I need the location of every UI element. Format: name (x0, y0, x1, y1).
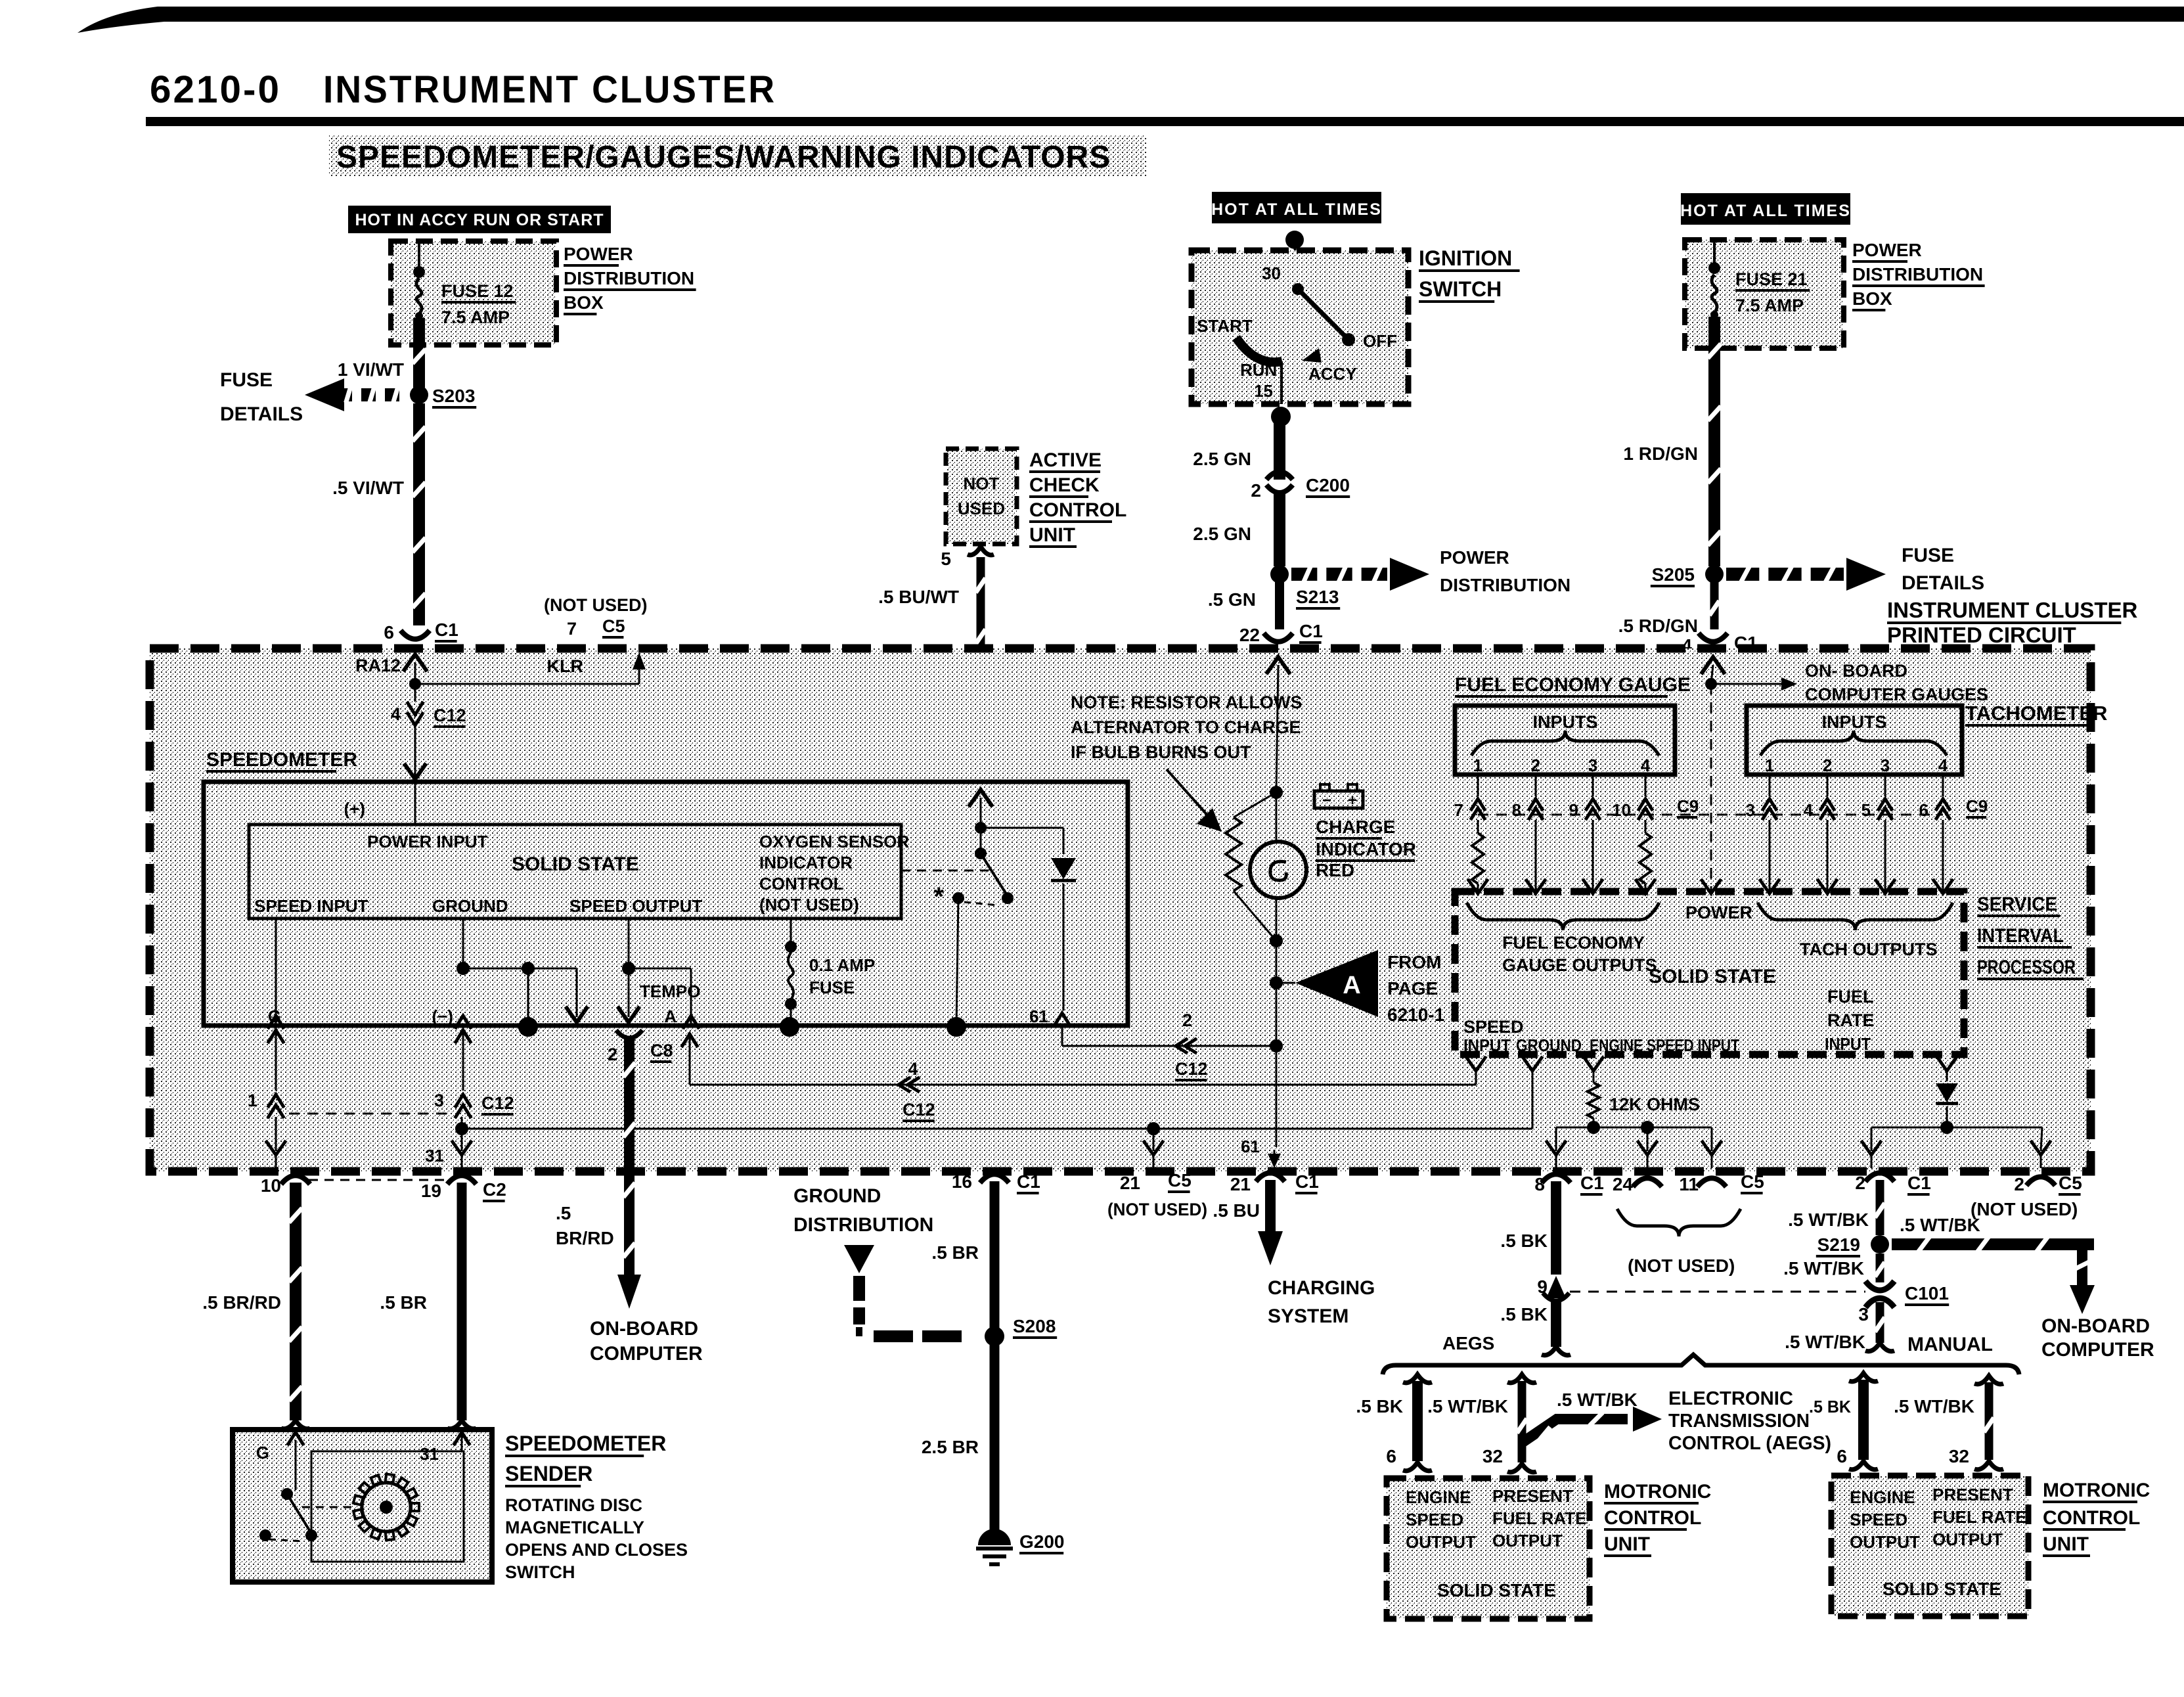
svg-text:.5 BR/RD: .5 BR/RD (202, 1292, 281, 1313)
svg-text:32: 32 (1949, 1446, 1969, 1466)
svg-text:SPEEDOMETER: SPEEDOMETER (206, 749, 357, 771)
svg-text:.5 RD/GN: .5 RD/GN (1618, 616, 1698, 636)
svg-text:ON- BOARD: ON- BOARD (1805, 661, 1907, 681)
svg-text:BOX: BOX (564, 292, 604, 313)
svg-text:FUSE: FUSE (1902, 545, 1954, 566)
svg-text:S208: S208 (1013, 1316, 1056, 1336)
svg-text:PRESENT: PRESENT (1932, 1485, 2013, 1505)
svg-text:.5 WT/BK: .5 WT/BK (1557, 1390, 1638, 1410)
svg-text:11: 11 (1679, 1174, 1699, 1194)
svg-text:CHARGING: CHARGING (1268, 1277, 1375, 1299)
svg-text:OFF: OFF (1363, 331, 1397, 351)
svg-text:C12: C12 (481, 1093, 514, 1113)
svg-text:9: 9 (1569, 800, 1578, 820)
svg-text:C12: C12 (1175, 1059, 1208, 1079)
svg-text:SOLID STATE: SOLID STATE (1649, 966, 1776, 987)
svg-text:3: 3 (1588, 756, 1597, 775)
svg-text:PRINTED CIRCUIT: PRINTED CIRCUIT (1887, 623, 2076, 647)
svg-text:S213: S213 (1296, 587, 1339, 607)
svg-text:DETAILS: DETAILS (1902, 572, 1984, 594)
svg-text:INPUT: INPUT (1825, 1034, 1871, 1054)
svg-text:PRESENT: PRESENT (1492, 1486, 1573, 1506)
svg-text:(NOT USED): (NOT USED) (1971, 1199, 2078, 1219)
svg-text:2.5 GN: 2.5 GN (1193, 449, 1251, 469)
svg-text:C5: C5 (2059, 1173, 2082, 1193)
svg-text:.5 WT/BK: .5 WT/BK (1785, 1332, 1865, 1352)
svg-text:TACH OUTPUTS: TACH OUTPUTS (1800, 939, 1938, 959)
svg-text:DETAILS: DETAILS (220, 403, 303, 425)
svg-text:IGNITION: IGNITION (1419, 246, 1512, 270)
svg-text:S203: S203 (432, 386, 475, 406)
svg-text:7: 7 (1454, 800, 1463, 820)
svg-text:.5: .5 (556, 1203, 571, 1223)
svg-text:G200: G200 (1019, 1531, 1065, 1552)
svg-text:C1: C1 (1907, 1173, 1931, 1193)
svg-text:KLR: KLR (547, 656, 584, 676)
svg-text:6210-1: 6210-1 (1387, 1005, 1444, 1025)
svg-text:CHECK: CHECK (1029, 474, 1100, 496)
svg-text:FUEL RATE: FUEL RATE (1492, 1508, 1586, 1528)
svg-text:21: 21 (1120, 1173, 1140, 1193)
svg-text:7: 7 (567, 619, 577, 639)
svg-text:.5 WT/BK: .5 WT/BK (1900, 1215, 1980, 1235)
svg-text:32: 32 (1482, 1446, 1503, 1466)
svg-text:ENGINE: ENGINE (1406, 1487, 1471, 1507)
svg-text:24: 24 (1613, 1174, 1634, 1194)
svg-text:C101: C101 (1905, 1283, 1949, 1303)
svg-text:HOT IN ACCY RUN OR START: HOT IN ACCY RUN OR START (355, 211, 604, 229)
svg-text:0.1 AMP: 0.1 AMP (809, 955, 875, 975)
svg-text:TEMPO: TEMPO (640, 982, 700, 1001)
svg-text:.5 BU: .5 BU (1213, 1200, 1260, 1221)
svg-text:MAGNETICALLY: MAGNETICALLY (505, 1518, 644, 1537)
svg-text:3: 3 (1746, 800, 1755, 820)
svg-text:S219: S219 (1817, 1234, 1860, 1255)
svg-text:SPEED: SPEED (1463, 1017, 1524, 1037)
svg-text:PAGE: PAGE (1387, 978, 1438, 999)
svg-text:FUSE 21: FUSE 21 (1735, 269, 1808, 289)
svg-text:C1: C1 (1299, 621, 1323, 641)
svg-text:C9: C9 (1677, 796, 1699, 816)
svg-text:DISTRIBUTION: DISTRIBUTION (564, 268, 694, 288)
svg-text:C12: C12 (903, 1100, 935, 1120)
svg-text:10: 10 (1612, 800, 1631, 820)
svg-text:2.5 GN: 2.5 GN (1193, 524, 1251, 544)
svg-text:CHARGE: CHARGE (1316, 817, 1395, 837)
svg-text:TACHOMETER: TACHOMETER (1965, 702, 2107, 725)
svg-text:ELECTRONIC: ELECTRONIC (1668, 1388, 1793, 1409)
svg-text:OUTPUT: OUTPUT (1492, 1531, 1563, 1550)
svg-text:6: 6 (1837, 1446, 1847, 1466)
svg-text:61: 61 (1241, 1137, 1260, 1156)
svg-text:ENGINE SPEED INPUT: ENGINE SPEED INPUT (1590, 1035, 1739, 1055)
svg-text:GROUND: GROUND (793, 1185, 881, 1207)
svg-text:CONTROL: CONTROL (1029, 499, 1126, 521)
svg-text:COMPUTER: COMPUTER (590, 1343, 703, 1365)
svg-text:SPEED: SPEED (1406, 1510, 1463, 1529)
svg-text:MANUAL: MANUAL (1907, 1334, 1993, 1355)
svg-text:FROM: FROM (1387, 952, 1441, 972)
svg-text:−: − (1322, 792, 1331, 809)
svg-text:1: 1 (1765, 756, 1774, 775)
svg-text:A: A (664, 1007, 677, 1026)
svg-text:INSTRUMENT CLUSTER: INSTRUMENT CLUSTER (1887, 598, 2137, 622)
svg-text:8: 8 (1512, 800, 1521, 820)
svg-text:31: 31 (425, 1146, 444, 1165)
svg-text:CONTROL: CONTROL (759, 874, 844, 894)
svg-text:4: 4 (391, 704, 401, 724)
svg-text:6: 6 (384, 622, 394, 643)
svg-text:2: 2 (1823, 756, 1832, 775)
svg-text:19: 19 (421, 1181, 441, 1201)
svg-text:PROCESSOR: PROCESSOR (1977, 957, 2076, 978)
svg-text:FUSE 12: FUSE 12 (441, 281, 514, 301)
svg-text:C9: C9 (1966, 796, 1988, 816)
svg-text:HOT AT ALL TIMES: HOT AT ALL TIMES (1211, 200, 1382, 219)
svg-text:2: 2 (1855, 1173, 1865, 1193)
svg-text:(NOT USED): (NOT USED) (544, 595, 648, 615)
svg-text:UNIT: UNIT (1604, 1533, 1650, 1555)
svg-text:4: 4 (908, 1059, 918, 1079)
svg-text:.5 BR: .5 BR (931, 1242, 979, 1263)
svg-text:2: 2 (2014, 1174, 2024, 1194)
svg-text:FUSE: FUSE (220, 369, 273, 391)
svg-text:CONTROL (AEGS): CONTROL (AEGS) (1668, 1433, 1831, 1454)
svg-text:DISTRIBUTION: DISTRIBUTION (1852, 264, 1983, 284)
svg-text:3: 3 (1858, 1304, 1869, 1324)
svg-text:GROUND: GROUND (1516, 1035, 1582, 1055)
svg-text:SOLID STATE: SOLID STATE (1883, 1579, 2001, 1599)
svg-text:OPENS AND CLOSES: OPENS AND CLOSES (505, 1540, 688, 1560)
svg-text:IF BULB BURNS OUT: IF BULB BURNS OUT (1071, 742, 1251, 762)
svg-text:C8: C8 (650, 1041, 673, 1060)
svg-text:(+): (+) (344, 799, 366, 819)
svg-text:.5 BK: .5 BK (1500, 1304, 1548, 1324)
svg-text:3: 3 (1881, 756, 1890, 775)
svg-text:(NOT USED): (NOT USED) (1107, 1200, 1207, 1219)
svg-text:ROTATING DISC: ROTATING DISC (505, 1495, 642, 1515)
svg-text:INPUTS: INPUTS (1821, 712, 1886, 732)
svg-text:(NOT USED): (NOT USED) (1628, 1256, 1735, 1276)
svg-text:AEGS: AEGS (1442, 1333, 1494, 1353)
svg-text:SPEED OUTPUT: SPEED OUTPUT (569, 896, 702, 916)
svg-text:SPEED INPUT: SPEED INPUT (254, 896, 368, 916)
svg-text:.5 WT/BK: .5 WT/BK (1427, 1396, 1508, 1416)
svg-text:C12: C12 (434, 706, 466, 725)
svg-text:C2: C2 (483, 1179, 506, 1200)
svg-text:12K OHMS: 12K OHMS (1609, 1095, 1700, 1114)
svg-text:SPEEDOMETER/GAUGES/WARNING IND: SPEEDOMETER/GAUGES/WARNING INDICATORS (336, 140, 1111, 175)
svg-text:5: 5 (1861, 800, 1871, 820)
svg-text:USED: USED (958, 499, 1005, 518)
svg-text:G: G (256, 1443, 269, 1462)
svg-text:UNIT: UNIT (2043, 1533, 2089, 1555)
svg-text:C1: C1 (1580, 1173, 1604, 1193)
svg-text:GAUGE OUTPUTS: GAUGE OUTPUTS (1502, 955, 1657, 975)
svg-text:.5 WT/BK: .5 WT/BK (1788, 1210, 1869, 1230)
svg-text:2.5 BR: 2.5 BR (922, 1437, 979, 1457)
svg-text:FUSE: FUSE (809, 978, 855, 997)
svg-text:COMPUTER GAUGES: COMPUTER GAUGES (1805, 685, 1988, 704)
svg-text:ON-BOARD: ON-BOARD (590, 1318, 698, 1340)
svg-text:INPUT: INPUT (1463, 1035, 1511, 1055)
svg-text:31: 31 (420, 1444, 439, 1464)
svg-text:2: 2 (1182, 1010, 1192, 1030)
svg-text:C5: C5 (602, 616, 625, 636)
svg-text:INTERVAL: INTERVAL (1977, 925, 2064, 947)
svg-text:.5 BK: .5 BK (1500, 1231, 1548, 1251)
svg-text:NOTE: RESISTOR ALLOWS: NOTE: RESISTOR ALLOWS (1071, 692, 1303, 712)
svg-text:RUN: RUN (1240, 360, 1277, 380)
svg-text:POWER: POWER (1440, 547, 1509, 568)
svg-text:C1: C1 (435, 620, 458, 640)
svg-text:.5 WT/BK: .5 WT/BK (1894, 1396, 1974, 1416)
svg-text:FUEL: FUEL (1827, 987, 1874, 1007)
svg-text:RATE: RATE (1827, 1010, 1875, 1030)
svg-text:ON-BOARD: ON-BOARD (2041, 1315, 2150, 1337)
svg-text:16: 16 (952, 1171, 972, 1192)
svg-text:OUTPUT: OUTPUT (1850, 1532, 1920, 1552)
svg-text:FUEL ECONOMY: FUEL ECONOMY (1502, 933, 1645, 953)
svg-text:.5 BR: .5 BR (380, 1292, 427, 1313)
svg-text:.5 BK: .5 BK (1356, 1396, 1403, 1416)
svg-text:S205: S205 (1652, 564, 1695, 585)
svg-text:UNIT: UNIT (1029, 524, 1075, 546)
svg-text:TRANSMISSION: TRANSMISSION (1668, 1411, 1810, 1432)
svg-text:MOTRONIC: MOTRONIC (2043, 1480, 2150, 1501)
svg-text:2: 2 (608, 1045, 617, 1064)
svg-text:4: 4 (1804, 800, 1814, 820)
svg-text:OUTPUT: OUTPUT (1932, 1529, 2003, 1549)
svg-text:POWER INPUT: POWER INPUT (367, 832, 488, 851)
svg-text:OXYGEN SENSOR: OXYGEN SENSOR (759, 832, 909, 851)
svg-text:3: 3 (434, 1091, 444, 1110)
svg-text:GROUND: GROUND (432, 896, 508, 916)
svg-text:2: 2 (1531, 756, 1540, 775)
svg-text:5: 5 (941, 549, 951, 569)
svg-text:SWITCH: SWITCH (505, 1562, 575, 1582)
svg-text:22: 22 (1239, 625, 1260, 645)
svg-text:6: 6 (1919, 800, 1928, 820)
svg-text:C1: C1 (1295, 1171, 1319, 1192)
svg-text:SYSTEM: SYSTEM (1268, 1305, 1348, 1327)
svg-text:INSTRUMENT CLUSTER: INSTRUMENT CLUSTER (323, 68, 776, 111)
svg-text:.5 BU/WT: .5 BU/WT (878, 587, 959, 607)
svg-text:.5 GN: .5 GN (1208, 589, 1256, 610)
svg-text:*: * (933, 882, 944, 911)
svg-text:.5 WT/BK: .5 WT/BK (1783, 1258, 1864, 1278)
svg-text:ENGINE: ENGINE (1850, 1487, 1915, 1507)
svg-text:1: 1 (1473, 756, 1482, 775)
svg-text:7.5 AMP: 7.5 AMP (1735, 296, 1804, 315)
svg-text:1 RD/GN: 1 RD/GN (1623, 443, 1698, 464)
svg-text:7.5 AMP: 7.5 AMP (441, 307, 510, 327)
svg-text:30: 30 (1262, 263, 1281, 283)
svg-text:6210-0: 6210-0 (150, 68, 281, 111)
svg-text:C5: C5 (1168, 1170, 1192, 1190)
svg-text:RA12: RA12 (355, 656, 401, 675)
svg-text:(NOT USED): (NOT USED) (759, 895, 859, 915)
svg-text:15: 15 (1254, 381, 1273, 401)
svg-text:+: + (1348, 792, 1357, 809)
svg-text:4: 4 (1641, 756, 1651, 775)
svg-text:SWITCH: SWITCH (1419, 277, 1502, 301)
svg-text:61: 61 (1029, 1007, 1048, 1026)
svg-text:POWER: POWER (564, 244, 633, 264)
svg-text:C1: C1 (1017, 1171, 1040, 1192)
svg-text:2: 2 (1251, 480, 1261, 501)
svg-text:NOT: NOT (964, 474, 1000, 493)
svg-text:ACCY: ACCY (1308, 364, 1357, 384)
svg-text:(−): (−) (432, 1007, 454, 1026)
svg-text:DISTRIBUTION: DISTRIBUTION (1440, 575, 1571, 595)
svg-text:INPUTS: INPUTS (1532, 712, 1597, 732)
svg-text:MOTRONIC: MOTRONIC (1604, 1481, 1711, 1503)
svg-text:START: START (1197, 316, 1253, 336)
svg-text:CONTROL: CONTROL (2043, 1507, 2140, 1529)
svg-text:INDICATOR: INDICATOR (1316, 839, 1416, 859)
svg-text:CONTROL: CONTROL (1604, 1507, 1701, 1529)
svg-text:HOT AT ALL TIMES: HOT AT ALL TIMES (1680, 202, 1851, 220)
svg-text:1: 1 (248, 1091, 257, 1110)
svg-text:BR/RD: BR/RD (556, 1228, 614, 1248)
svg-text:10: 10 (261, 1175, 281, 1196)
svg-text:FUEL RATE: FUEL RATE (1932, 1507, 2026, 1527)
svg-text:INDICATOR: INDICATOR (759, 853, 853, 872)
svg-text:.5 BK: .5 BK (1809, 1397, 1851, 1416)
svg-text:POWER: POWER (1685, 903, 1752, 922)
svg-text:6: 6 (1386, 1446, 1396, 1466)
svg-text:ALTERNATOR TO CHARGE: ALTERNATOR TO CHARGE (1071, 717, 1301, 737)
svg-text:C5: C5 (1741, 1171, 1764, 1192)
svg-text:C200: C200 (1306, 475, 1350, 495)
svg-text:1 VI/WT: 1 VI/WT (338, 359, 404, 380)
svg-text:21: 21 (1230, 1174, 1251, 1194)
svg-text:SPEEDOMETER: SPEEDOMETER (505, 1432, 666, 1455)
svg-text:COMPUTER: COMPUTER (2041, 1339, 2154, 1361)
svg-text:POWER: POWER (1852, 240, 1922, 260)
svg-text:OUTPUT: OUTPUT (1406, 1532, 1476, 1552)
svg-text:DISTRIBUTION: DISTRIBUTION (793, 1214, 933, 1236)
svg-text:FUEL ECONOMY GAUGE: FUEL ECONOMY GAUGE (1455, 674, 1691, 696)
svg-text:RED: RED (1316, 860, 1354, 880)
svg-text:SPEED: SPEED (1850, 1510, 1907, 1529)
svg-text:ACTIVE: ACTIVE (1029, 449, 1102, 471)
svg-text:SOLID STATE: SOLID STATE (1437, 1580, 1556, 1600)
svg-text:SENDER: SENDER (505, 1462, 592, 1485)
svg-text:4: 4 (1938, 756, 1948, 775)
svg-text:SOLID STATE: SOLID STATE (512, 853, 639, 875)
svg-text:.5 VI/WT: .5 VI/WT (332, 478, 404, 498)
svg-text:A: A (1343, 972, 1360, 999)
svg-text:BOX: BOX (1852, 288, 1892, 309)
svg-text:SERVICE: SERVICE (1977, 894, 2057, 915)
